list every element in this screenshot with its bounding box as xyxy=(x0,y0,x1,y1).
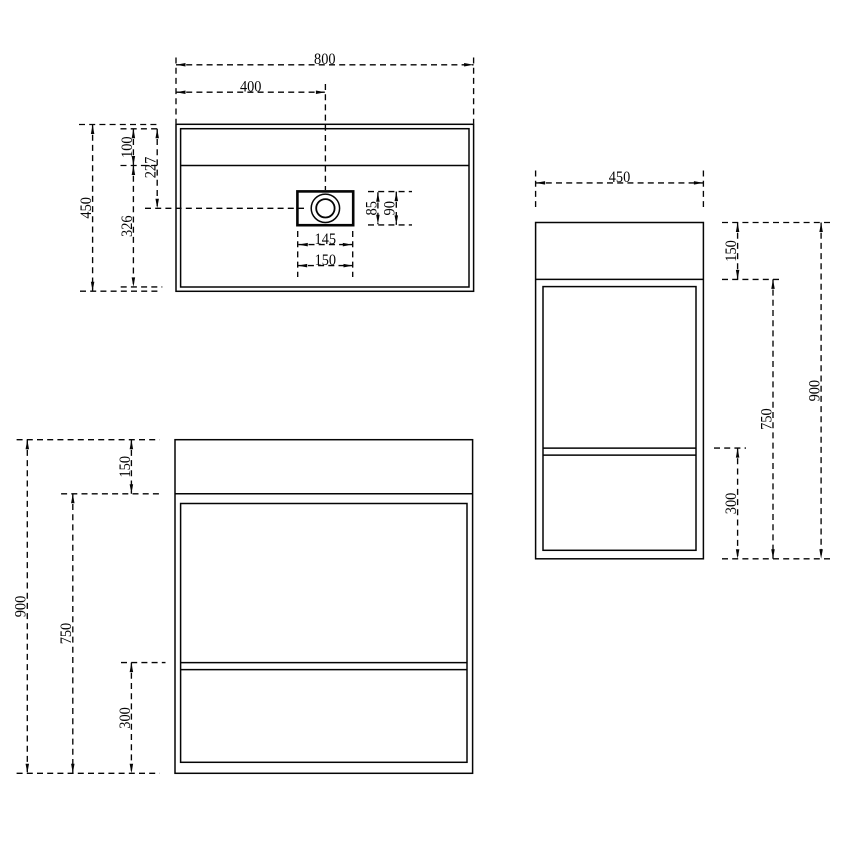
svg-text:450: 450 xyxy=(78,197,95,219)
svg-text:85: 85 xyxy=(363,201,380,216)
svg-text:100: 100 xyxy=(119,136,136,158)
svg-text:800: 800 xyxy=(314,51,336,68)
svg-text:150: 150 xyxy=(723,240,740,262)
svg-text:750: 750 xyxy=(58,622,75,644)
svg-text:900: 900 xyxy=(807,380,824,402)
svg-text:300: 300 xyxy=(117,707,134,729)
svg-text:450: 450 xyxy=(609,169,631,186)
svg-text:150: 150 xyxy=(117,456,134,478)
svg-text:326: 326 xyxy=(119,215,136,237)
svg-text:150: 150 xyxy=(315,252,337,269)
svg-text:900: 900 xyxy=(13,595,30,617)
svg-text:227: 227 xyxy=(143,156,160,178)
svg-text:750: 750 xyxy=(758,408,775,430)
svg-text:300: 300 xyxy=(723,492,740,514)
svg-text:145: 145 xyxy=(315,231,337,248)
svg-text:90: 90 xyxy=(382,201,399,216)
svg-text:400: 400 xyxy=(240,78,262,95)
